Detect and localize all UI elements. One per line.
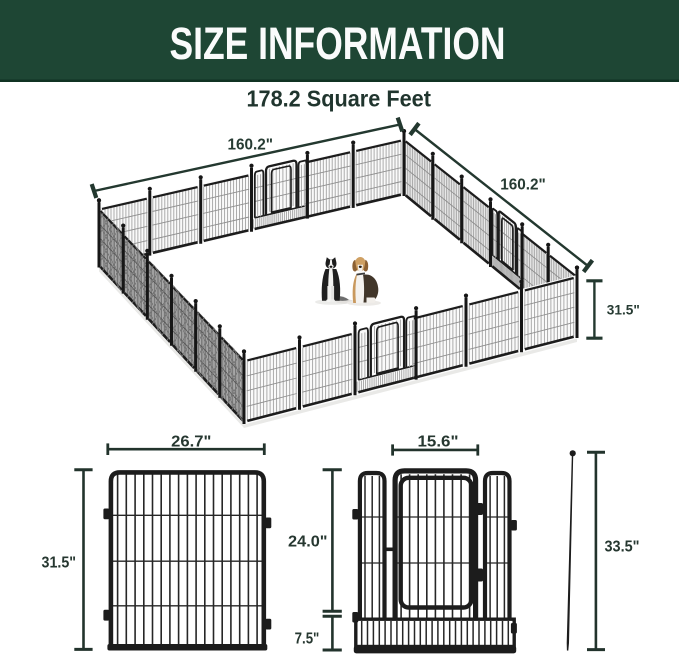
svg-text:24.0": 24.0" [288,534,328,551]
svg-text:160.2": 160.2" [227,136,273,153]
svg-text:26.7": 26.7" [171,433,211,450]
svg-text:7.5": 7.5" [295,631,320,648]
svg-text:178.2 Square Feet: 178.2 Square Feet [246,85,431,111]
svg-text:33.5": 33.5" [605,539,640,556]
svg-text:31.5": 31.5" [42,554,77,571]
svg-text:15.6": 15.6" [418,434,459,451]
svg-text:SIZE INFORMATION: SIZE INFORMATION [170,18,506,69]
svg-text:160.2": 160.2" [500,177,546,194]
svg-text:31.5": 31.5" [607,301,640,317]
